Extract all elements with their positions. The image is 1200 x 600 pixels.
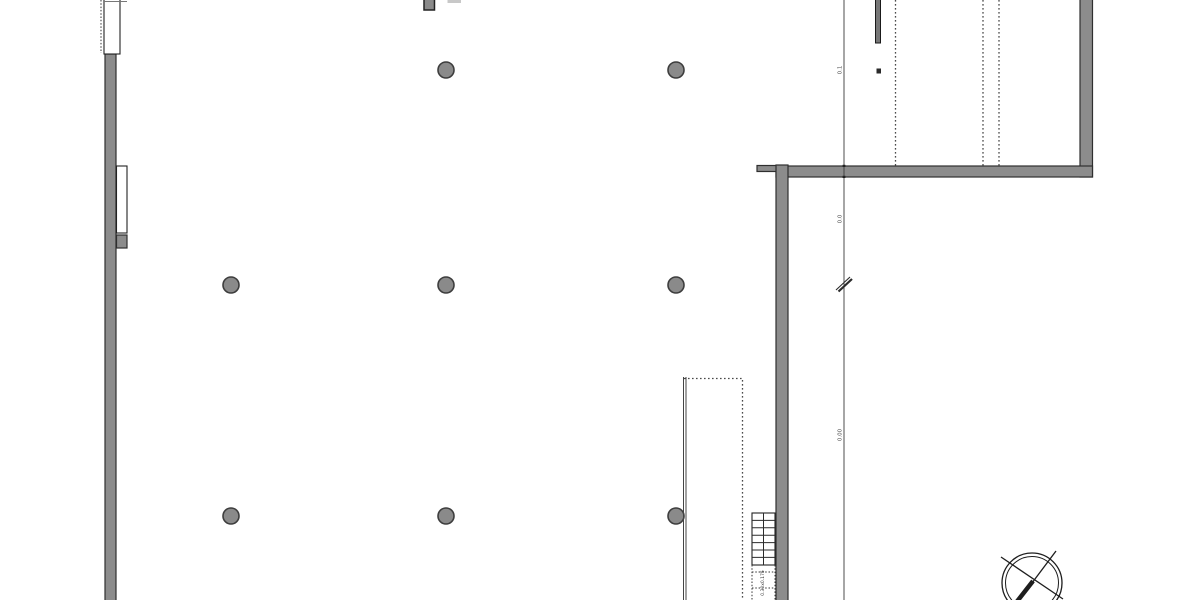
window-top-left [104,0,120,54]
wall-stub-mark [424,0,435,10]
column-marker [438,62,454,78]
column-marker [668,62,684,78]
beam-mark [448,0,462,3]
column-marker [223,508,239,524]
column-marker [438,508,454,524]
stair-note-label: 0.30x0.175 [760,570,766,596]
floor-plan-canvas: 0.1 0.0 0.00 0.30x0.175 [0,0,1200,600]
column-marker [668,277,684,293]
stair-hall-wall [776,165,788,600]
wall-pilaster-base [117,235,128,248]
staircase-group: 0.30x0.175 [684,377,776,600]
north-compass [1001,551,1063,600]
compass-cross-line [1001,557,1063,599]
level-label-mid: 0.0 [838,214,844,223]
dimension-tick [843,176,846,178]
left-wall-group [101,0,127,600]
dimension-line-group: 0.1 0.0 0.00 [836,0,852,600]
wall-pilaster-window [117,166,128,233]
column-marker [668,508,684,524]
door-leaf-mark [876,0,881,43]
upper-right-room [757,0,1093,600]
room-south-wall [776,166,1093,177]
column-grid [223,62,684,524]
floor-plan-drawing: 0.1 0.0 0.00 0.30x0.175 [0,0,1200,600]
dimension-tick [843,165,846,167]
column-marker [438,277,454,293]
level-label-lower: 0.00 [838,428,844,441]
wall-protrusion [757,166,777,172]
post-mark [877,69,882,74]
level-label-upper: 0.1 [838,66,844,75]
right-exterior-wall [1080,0,1093,177]
left-wall [105,54,116,600]
compass-needle-icon [1008,581,1033,600]
stair-void-outline [684,379,743,600]
column-marker [223,277,239,293]
